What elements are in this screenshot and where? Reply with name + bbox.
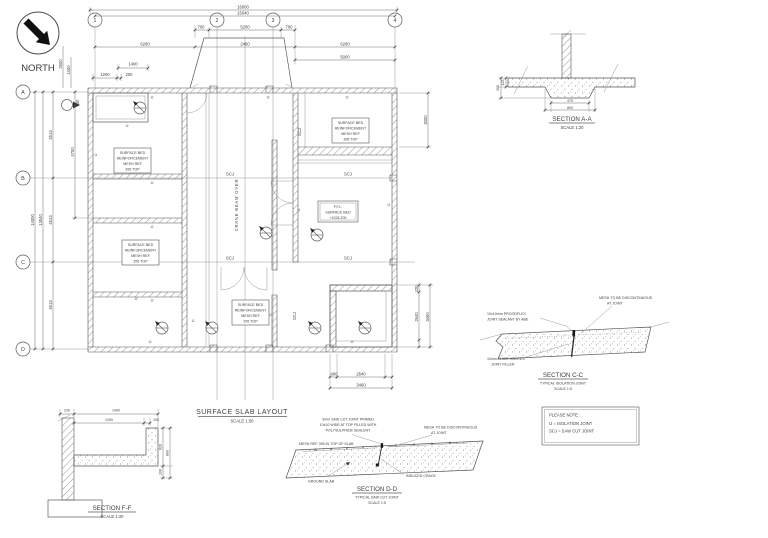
dim-label: 4513 xyxy=(48,300,53,310)
drawing-sheet: NORTH 1 2 3 4 A B C D xyxy=(0,0,768,538)
grid-col-1: 1 xyxy=(94,18,97,24)
dim-label: 200 xyxy=(126,72,134,77)
dim-label: 1200 xyxy=(100,72,110,77)
dim-label: 125 xyxy=(501,80,505,86)
crane-beam-label: CRANE BEAM OVER xyxy=(234,179,239,232)
saw-cut-note: POLYSULPHIDE SEALENT xyxy=(326,429,371,433)
dim-label: 620 xyxy=(159,444,163,450)
dim-label: 5200 xyxy=(240,25,250,30)
section-aa: 125 300 470 800 SECTION A-A SCALE 1:20 xyxy=(496,30,635,130)
dim-label: 700 xyxy=(198,25,206,30)
section-aa-title: SECTION A-A xyxy=(552,116,592,123)
mesh-note-box-3: SURFACE BED REINFORCEMENT MESH REF 395 T… xyxy=(232,300,269,325)
dim-label: 1400 xyxy=(66,65,71,75)
grid-row-d: D xyxy=(21,347,25,353)
mesh-note-line: MESH REF xyxy=(241,314,260,318)
mesh-note-line: REINFORCEMENT xyxy=(125,249,157,253)
saw-cut-note: 3mm SAW CUT JOINT PRIMED xyxy=(322,418,374,422)
dim-label: 3000 xyxy=(423,115,428,125)
dim-label: 1400 xyxy=(128,62,138,67)
ij-label: IJ xyxy=(267,96,270,100)
drain-symbol xyxy=(133,101,146,114)
ij-label: IJ xyxy=(346,96,349,100)
note-line: PLEASE NOTE : xyxy=(549,413,580,418)
dim-label: 5000 xyxy=(340,54,350,59)
dim-label: 400 xyxy=(331,372,339,377)
ij-label: IJ xyxy=(94,153,98,156)
dim-label: 16000 xyxy=(237,5,249,10)
mesh-note-line: MESH REF xyxy=(123,162,142,166)
ij-label: IJ xyxy=(135,297,138,301)
grid-col-4: 4 xyxy=(394,18,397,24)
mesh-discontinuous-note: MESH TO BE DISCONTINUOUS xyxy=(599,296,653,300)
mesh-note-line: SURFACE BED xyxy=(120,151,146,155)
dim-label: 1200 xyxy=(105,418,113,422)
mesh-note-line: REINFORCEMENT xyxy=(117,157,149,161)
dim-label: 6290 xyxy=(340,41,350,46)
section-aa-scale: SCALE 1:20 xyxy=(560,125,584,130)
section-ff-scale: SCALE 1:20 xyxy=(100,514,124,519)
mesh-note-line: REINFORCEMENT xyxy=(335,127,367,131)
ij-label: IJ xyxy=(351,340,354,344)
mesh-discontinuous-note: AT JOINT xyxy=(607,302,623,306)
dim-label: 420 xyxy=(414,285,419,293)
mesh-note-line: 395 TOP xyxy=(125,168,140,172)
note-box: PLEASE NOTE : IJ = ISOLATION JOINT SCJ =… xyxy=(542,407,639,445)
filler-note: 10mm THICK JOINTEX xyxy=(487,357,525,361)
induced-crack-note: INDUCED CRACK xyxy=(406,474,437,478)
mesh-note-line: SURFACE BED xyxy=(238,303,264,307)
sealant-note: 10x10mm PROODFLEX xyxy=(487,312,527,316)
section-dd-subtitle: TYPICAL SAW CUT JOINT xyxy=(355,496,399,500)
drain-symbol xyxy=(259,226,272,239)
floor-plan: 1 2 3 4 A B C D xyxy=(16,5,433,424)
ij-label: IJ xyxy=(151,299,154,303)
mesh-discontinuous-note: MESH TO BE DISCONTINUOUS xyxy=(424,426,478,430)
plan-scale: SCALE 1:50 xyxy=(230,419,254,424)
section-cc-subtitle: TYPICAL ISOLATION JOINT xyxy=(540,382,587,386)
ground-slab-note: GROUND SLAB xyxy=(308,480,335,484)
saw-cut-note: 10x10 WIDE AT TOP FILLED WITH xyxy=(320,423,377,427)
ij-label: IJ xyxy=(151,225,154,229)
ij-label: IJ xyxy=(297,208,301,211)
ij-label: IJ xyxy=(151,96,154,100)
mesh-note-box-1: SURFACE BED REINFORCEMENT MESH REF 395 T… xyxy=(114,148,151,173)
note-line: SCJ = SAW CUT JOINT xyxy=(549,429,594,434)
dim-label: 14000 xyxy=(30,214,35,226)
dim-label: 13040 xyxy=(38,214,43,226)
mesh-note-line: 395 TOP xyxy=(343,138,358,142)
dim-label: 1400 xyxy=(112,409,120,413)
section-dd-title: SECTION D-D xyxy=(357,486,398,493)
dim-label: 2640 xyxy=(414,312,419,322)
dim-label: 2460 xyxy=(240,41,250,46)
drain-symbol xyxy=(308,321,321,334)
dim-label: 400 xyxy=(75,99,80,107)
dim-label: 230 xyxy=(64,409,70,413)
dim-label: 3460 xyxy=(425,312,430,322)
grid-row-a: A xyxy=(21,90,25,96)
mesh-note-line: MESH REF xyxy=(341,132,360,136)
ffl-line: F.F.L. xyxy=(334,205,343,209)
dim-label: 800 xyxy=(567,106,573,110)
scj-label: SCJ xyxy=(297,128,302,136)
ij-label: IJ xyxy=(126,124,129,128)
mesh-note-line: MESH REF xyxy=(131,254,150,258)
sealant-note: JOINT SEALANT BY ABE xyxy=(487,318,529,322)
section-dd: 3mm SAW CUT JOINT PRIMED 10x10 WIDE AT T… xyxy=(286,418,483,506)
mesh-note-box-2: SURFACE BED REINFORCEMENT MESH REF 395 T… xyxy=(122,240,159,265)
mesh-note-line: SURFACE BED xyxy=(128,243,154,247)
ffl-note-box: F.F.L. SURFACE BED +1028.200 xyxy=(318,201,358,222)
mesh-ref-note: MESH REF 395 IN TOP OF SLAB xyxy=(299,442,354,446)
ffl-line: SURFACE BED xyxy=(325,211,351,215)
north-indicator: NORTH xyxy=(17,12,59,74)
section-cc-title: SECTION C-C xyxy=(543,372,584,379)
grid-row-c: C xyxy=(21,260,25,266)
dim-label: 200 xyxy=(159,469,163,475)
grid-row-b: B xyxy=(21,176,25,182)
dim-label: 3460 xyxy=(356,383,366,388)
scj-label: SCJ xyxy=(226,256,234,261)
ij-label: IJ xyxy=(192,319,195,323)
filler-note: JOINT FILLER xyxy=(491,363,515,367)
north-label: NORTH xyxy=(21,63,55,74)
grid-col-3: 3 xyxy=(272,18,275,24)
mesh-note-box-4: SURFACE BED REINFORCEMENT MESH REF 395 T… xyxy=(332,118,369,143)
scj-label: SCJ xyxy=(344,172,352,177)
note-line: IJ = ISOLATION JOINT xyxy=(549,421,593,426)
drain-symbol xyxy=(205,321,218,334)
dim-label: 15040 xyxy=(237,11,249,16)
dim-label: 4513 xyxy=(48,130,53,140)
drain-symbol xyxy=(155,321,168,334)
dim-label: 700 xyxy=(286,25,294,30)
dim-label: 4513 xyxy=(48,215,53,225)
ij-label: IJ xyxy=(151,181,154,185)
mesh-note-line: 395 TOP xyxy=(133,260,148,264)
section-ff: 230 1400 1200 100 620 800 200 SECTION F-… xyxy=(48,409,173,520)
mesh-discontinuous-note: AT JOINT xyxy=(431,431,447,435)
mesh-note-line: REINFORCEMENT xyxy=(235,309,267,313)
dim-label: 6290 xyxy=(140,41,150,46)
pit xyxy=(330,285,392,347)
cad-drawing: NORTH 1 2 3 4 A B C D xyxy=(0,0,768,538)
dim-label: 2500 xyxy=(58,59,63,69)
dim-label: 4700 xyxy=(70,147,75,157)
drain-symbol xyxy=(358,321,371,334)
mesh-note-line: 395 TOP xyxy=(243,320,258,324)
section-dd-scale: SCALE 1:5 xyxy=(368,501,386,505)
grid-col-2: 2 xyxy=(216,18,219,24)
dim-label: 470 xyxy=(567,99,573,103)
ij-label: IJ xyxy=(149,340,152,344)
section-ff-title: SECTION F-F xyxy=(93,505,132,512)
scj-label: SCJ xyxy=(226,172,234,177)
scj-label: SCJ xyxy=(344,256,352,261)
dim-label: 300 xyxy=(496,85,500,91)
plan-title-block: SURFACE SLAB LAYOUT SCALE 1:50 xyxy=(196,409,288,424)
dim-label: 100 xyxy=(153,418,159,422)
dim-label: 2640 xyxy=(356,372,366,377)
plan-title: SURFACE SLAB LAYOUT xyxy=(196,409,288,416)
ij-label: IJ xyxy=(387,203,391,206)
dim-label: 800 xyxy=(166,450,170,456)
mesh-note-line: SURFACE BED xyxy=(338,121,364,125)
section-cc: 10x10mm PROODFLEX JOINT SEALANT BY ABE M… xyxy=(480,296,669,391)
section-cc-scale: SCALE 1:5 xyxy=(554,387,572,391)
ffl-line: +1028.200 xyxy=(329,216,346,220)
drain-symbol xyxy=(310,228,323,241)
scj-label: SCJ xyxy=(292,312,297,320)
